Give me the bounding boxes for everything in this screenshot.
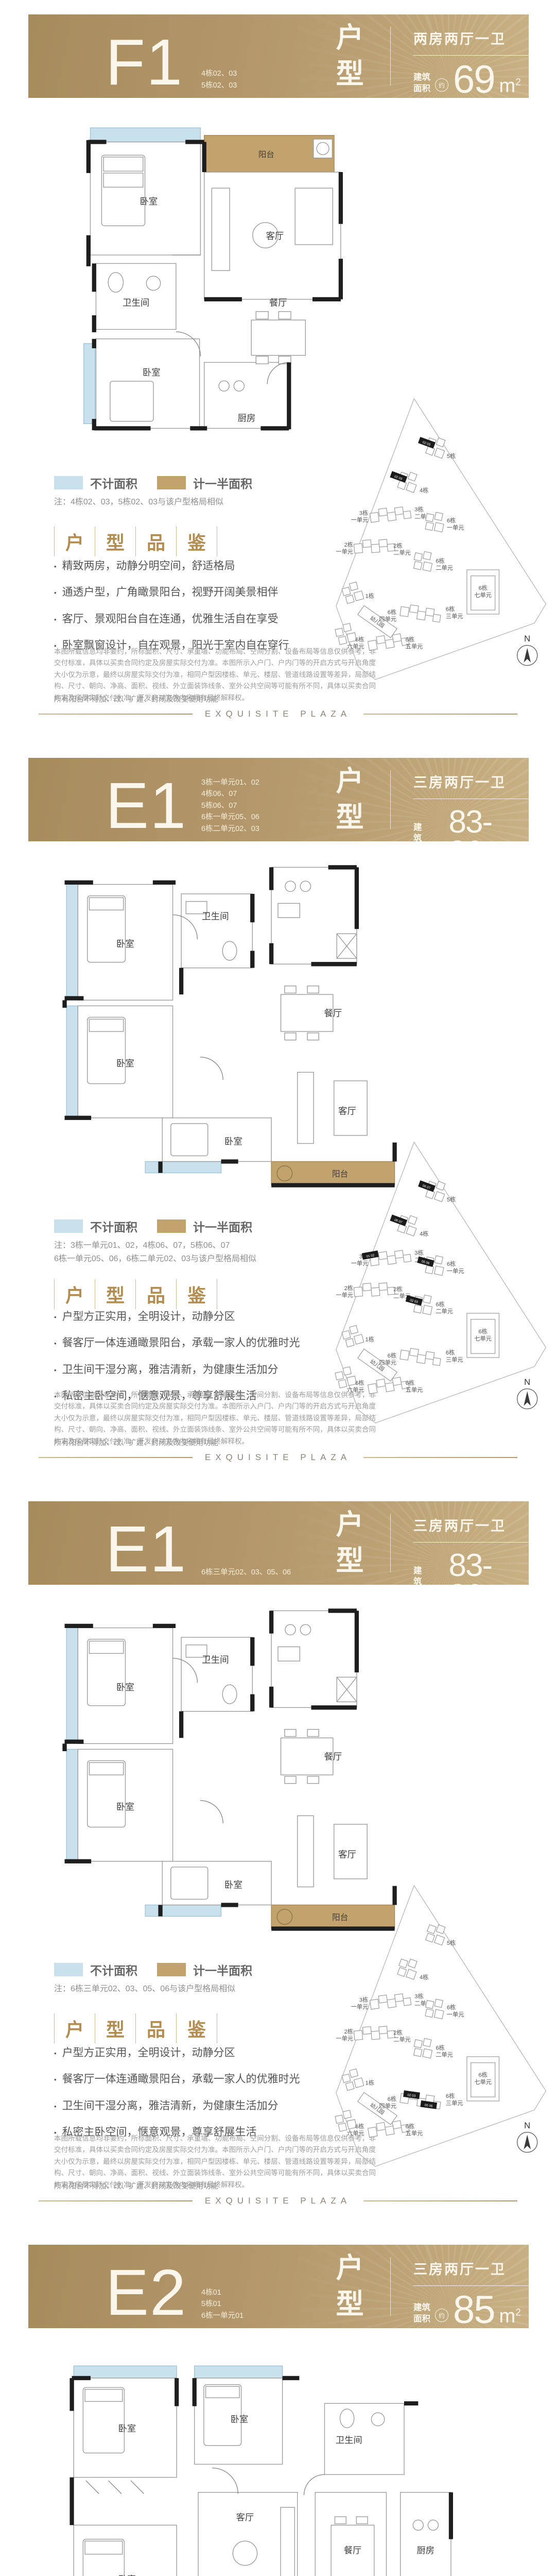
svg-text:2栋: 2栋 [393,2029,402,2036]
svg-text:一单元: 一单元 [351,2004,369,2010]
approx-badge: 约 [435,78,448,92]
legend-label: 计一半面积 [193,1961,252,1978]
svg-text:一单元: 一单元 [351,1260,369,1267]
feature-item: •客厅、景观阳台自在连通，优雅生活自在享受 [54,613,373,626]
room-label: 卧室 [224,1879,242,1890]
svg-text:一单元: 一单元 [447,1268,464,1275]
divider [390,770,391,829]
note: 注：6栋三单元02、03、05、06与该户型格局相似 [54,1982,235,1996]
svg-text:六单元: 六单元 [347,2130,364,2137]
note: 注：3栋一单元01、02，4栋06、07，5栋06、07 6栋一单元05、06，… [54,1239,256,1265]
svg-text:6栋: 6栋 [436,2044,444,2051]
divider [390,2257,391,2316]
building-label: 4栋 [420,486,428,494]
svg-text:3栋: 3栋 [414,1249,423,1257]
layout-type: 三房两厅一卫 [413,771,529,791]
svg-text:3栋: 3栋 [414,506,423,513]
svg-text:七单元: 七单元 [474,1335,492,1342]
svg-text:二单元: 二单元 [436,1308,453,1315]
svg-text:六单元: 六单元 [347,1386,364,1393]
svg-text:五单元: 五单元 [406,2130,423,2137]
area-value: 69 [453,64,495,96]
room-label: 餐厅 [344,2545,362,2555]
svg-text:6栋: 6栋 [446,605,455,613]
unit-highlight: 02 03 [406,1295,423,1306]
section-title: 户型品鉴 [54,527,217,556]
svg-text:6栋: 6栋 [447,517,456,524]
footer: EXQUISITE PLAZA [39,1452,517,1463]
siteplan: 5栋 4栋 3栋 一单元 3栋 二单元 6栋 一单元 2栋 一单元 2栋 二单元… [332,1136,553,1426]
unit-list: 4栋01 5栋01 6栋一单元01 [201,2287,315,2321]
section-title: 户型品鉴 [54,2013,217,2043]
balcony-note: 所有阳台不得加、改、扩建、封闭及改变使用功能 [54,1437,218,1448]
floorplan-f1: 卧室 阳台 客厅 卫生间 卧室 餐厅 厨房 [49,117,378,438]
svg-text:3栋: 3栋 [414,1993,423,2000]
room-label: 卧室 [116,1682,134,1692]
unit-highlight: 02 03 [418,437,436,449]
section-title: 户型品鉴 [54,1279,217,1309]
siteplan-slot: 5栋 4栋 3栋 一单元 3栋 二单元 6栋 一单元 2栋 一单元 2栋 二单元… [332,1879,553,2184]
panel-header: E2 4栋01 5栋01 6栋一单元01 户型 三房两厅一卫 建筑 面积 约 8… [28,2245,529,2328]
legend-swatch-noarea [54,1963,83,1976]
svg-text:一单元: 一单元 [336,1292,353,1299]
compass: N [517,634,537,666]
footer-brand: EXQUISITE PLAZA [193,2196,363,2206]
legend-label: 不计面积 [90,1217,137,1235]
svg-text:四单元: 四单元 [379,1360,396,1366]
svg-text:2栋: 2栋 [344,1284,353,1292]
svg-text:6栋: 6栋 [436,1300,444,1308]
panel-f1: F1 4栋02、03 5栋02、03 户型 两房两厅一卫 建筑 面积 约 69 … [0,0,556,743]
svg-text:六单元: 六单元 [347,643,364,650]
legend-swatch-noarea [54,476,83,489]
divider [413,799,529,799]
room-label: 客厅 [266,231,284,241]
svg-text:一单元: 一单元 [336,549,353,555]
svg-text:一单元: 一单元 [447,524,464,531]
svg-text:二单元: 二单元 [393,550,411,556]
svg-text:6栋: 6栋 [355,2123,364,2130]
svg-text:6栋: 6栋 [478,584,487,591]
legend-label: 计一半面积 [193,474,252,492]
building-label: 4栋 [420,1973,428,1980]
svg-text:四单元: 四单元 [379,616,396,623]
legend-label: 不计面积 [90,1961,137,1978]
svg-text:一单元: 一单元 [336,2036,353,2042]
legend-swatch-halfarea [157,1963,186,1976]
room-label: 卧室 [140,196,158,207]
svg-text:6栋: 6栋 [355,1379,364,1386]
layout-type: 两房两厅一卫 [413,28,529,48]
feature-item: •餐客厅一体连通瞰景阳台，承载一家人的优雅时光 [54,2073,373,2086]
room-label: 卫生间 [336,2435,362,2445]
unit-list: 3栋一单元01、02 4栋06、07 5栋06、07 6栋一单元05、06 6栋… [201,777,315,835]
svg-text:五单元: 五单元 [406,1386,423,1393]
room-label: 卧室 [143,367,161,378]
svg-text:3栋: 3栋 [359,509,368,516]
divider [413,55,529,56]
room-label: 厨房 [417,2545,435,2555]
area-label: 建筑 面积 [413,72,430,94]
svg-text:N: N [524,1377,530,1387]
unit-list: 4栋02、03 5栋02、03 [201,68,315,91]
room-label: 客厅 [338,1849,356,1859]
unit-code: E2 [106,2260,187,2325]
siteplan: 5栋 4栋 3栋 一单元 3栋 二单元 6栋 一单元 2栋 一单元 2栋 二单元… [332,1879,553,2169]
area-value: 85 [453,2294,495,2326]
feature-item: •餐客厅一体连通瞰景阳台，承载一家人的优雅时光 [54,1336,373,1350]
siteplan-slot: 5栋 4栋 3栋 一单元 3栋 二单元 6栋 一单元 2栋 一单元 2栋 二单元… [332,393,553,698]
divider [39,2200,193,2201]
balcony-note: 所有阳台不得加、改、扩建、封闭及改变使用功能 [54,693,218,704]
svg-text:3栋: 3栋 [359,1996,368,2003]
feature-item: •精致两房，动静分明空间，舒适格局 [54,560,373,573]
svg-text:6栋: 6栋 [388,1352,396,1359]
huxing-label: 户型 [333,1510,361,1582]
svg-text:N: N [524,2121,530,2130]
room-label: 餐厅 [269,298,287,308]
unit-code: F1 [106,30,183,95]
room-label: 卧室 [118,2423,136,2433]
legend-label: 不计面积 [90,474,137,492]
feature-item: •卫生间干湿分离，雅洁清新，为健康生活加分 [54,1363,373,1377]
svg-text:6栋: 6栋 [446,1349,455,1356]
floorplan-e2: 卧室 卧室 卫生间 卧室 客厅 餐厅 厨房 阳台 [44,2357,456,2576]
floorplan-slot: 卧室 阳台 客厅 卫生间 卧室 餐厅 厨房 [49,117,378,438]
feature-item: •通透户型，广角瞰景阳台，视野开阔美景相伴 [54,586,373,599]
balcony-note: 所有阳台不得加、改、扩建、封闭及改变使用功能 [54,2180,218,2191]
svg-text:七单元: 七单元 [474,2079,492,2086]
footer-brand: EXQUISITE PLAZA [193,709,363,719]
area-label: 建筑 面积 [413,1566,426,1585]
svg-text:6栋: 6栋 [478,1328,487,1335]
footer: EXQUISITE PLAZA [39,709,517,719]
svg-text:6栋: 6栋 [406,636,414,643]
divider [363,2200,517,2201]
area-label: 建筑 面积 [413,2302,430,2325]
panel-header: E1 6栋三单元02、03、05、06 户型 三房两厅一卫 建筑 面积 约 83… [28,1501,529,1585]
building-label: 1栋 [366,1336,374,1343]
layout-type: 三房两厅一卫 [413,1515,529,1535]
divider [390,27,391,86]
area-label: 建筑 面积 [413,822,426,841]
building-label: 5栋 [447,1939,456,1946]
svg-text:6栋: 6栋 [388,2095,396,2103]
unit-code: E1 [106,773,187,838]
divider [413,2285,529,2286]
svg-text:6栋: 6栋 [388,608,396,616]
svg-text:2栋: 2栋 [393,1285,402,1293]
room-label: 卧室 [118,2574,136,2576]
building-label: 4栋 [420,1230,428,1237]
svg-text:七单元: 七单元 [474,592,492,599]
feature-item: •户型方正实用，全明设计，动静分区 [54,2046,373,2060]
unit-list: 6栋三单元02、03、05、06 [201,1567,315,1578]
room-label: 客厅 [236,2512,254,2522]
compass: N [517,1377,537,1409]
svg-text:6栋: 6栋 [478,2071,487,2078]
unit-code: E1 [106,1517,187,1582]
room-label: 卫生间 [202,911,229,922]
legend-label: 计一半面积 [193,1217,252,1235]
legend-swatch-halfarea [157,476,186,489]
svg-text:二单元: 二单元 [436,565,453,571]
svg-text:2栋: 2栋 [344,541,353,548]
area-unit: m2 [499,76,521,96]
building-label: 1栋 [366,2079,374,2087]
room-label: 卧室 [231,2414,249,2424]
building-label: 1栋 [366,592,374,600]
note: 注：4栋02、03，5栋02、03与该户型格局相似 [54,496,223,509]
approx-badge: 约 [435,2309,448,2322]
footer-brand: EXQUISITE PLAZA [193,1452,363,1463]
area-value: 83-86 [449,1551,506,1585]
divider [413,1542,529,1543]
svg-text:二单元: 二单元 [436,2052,453,2058]
siteplan-slot: 5栋 4栋 3栋 一单元 3栋 二单元 6栋 一单元 2栋 一单元 2栋 二单元… [332,1136,553,1441]
svg-text:6栋: 6栋 [447,2004,456,2011]
svg-text:6栋: 6栋 [355,636,364,643]
feature-item: •户型方正实用，全明设计，动静分区 [54,1310,373,1324]
legend: 不计面积 计一半面积 [54,1961,272,1978]
svg-text:二单元: 二单元 [393,2037,411,2043]
room-label: 餐厅 [324,1752,342,1762]
legend-swatch-halfarea [157,1219,186,1233]
legend: 不计面积 计一半面积 [54,1217,272,1235]
legend-swatch-noarea [54,1219,83,1233]
room-label: 卧室 [116,939,134,949]
compass: N [517,2121,537,2153]
room-label: 阳台 [258,150,274,159]
svg-text:五单元: 五单元 [406,643,423,650]
panel-header: F1 4栋02、03 5栋02、03 户型 两房两厅一卫 建筑 面积 约 69 … [28,14,529,98]
floorplan-slot: 卧室 卧室 卫生间 卧室 客厅 餐厅 厨房 阳台 [44,2357,456,2576]
huxing-label: 户型 [333,766,361,838]
svg-text:6栋: 6栋 [436,557,444,564]
divider [363,714,517,715]
area-value: 83-86 [449,807,506,841]
svg-text:三单元: 三单元 [446,1357,463,1363]
area-unit: m2 [499,2307,521,2326]
room-label: 餐厅 [324,1008,342,1019]
feature-item: •卫生间干湿分离，雅洁清新，为健康生活加分 [54,2099,373,2113]
panel-e1-a: E1 3栋一单元01、02 4栋06、07 5栋06、07 6栋一单元05、06… [0,743,556,1487]
room-label: 客厅 [338,1106,356,1116]
svg-text:2栋: 2栋 [344,2028,353,2035]
room-label: 卧室 [116,1802,134,1812]
room-label: 卫生间 [202,1655,229,1665]
flyer-page: F1 4栋02、03 5栋02、03 户型 两房两厅一卫 建筑 面积 约 69 … [0,0,556,2576]
unit-highlight: 06 07 [418,1180,436,1192]
svg-text:一单元: 一单元 [447,2011,464,2018]
svg-text:6栋: 6栋 [406,1379,414,1386]
svg-text:6栋: 6栋 [446,2092,455,2099]
layout-type: 三房两厅一卫 [413,2258,529,2278]
huxing-label: 户型 [333,2253,361,2325]
svg-text:三单元: 三单元 [446,2100,463,2107]
svg-text:2栋: 2栋 [393,542,402,549]
huxing-label: 户型 [333,23,361,95]
svg-text:一单元: 一单元 [351,517,369,523]
divider [363,1457,517,1458]
divider [39,714,193,715]
svg-text:6栋: 6栋 [447,1260,456,1267]
room-label: 卧室 [116,1058,134,1069]
divider [39,1457,193,1458]
unit-highlight: 02 03 [390,471,407,483]
siteplan: 5栋 4栋 3栋 一单元 3栋 二单元 6栋 一单元 2栋 一单元 2栋 二单元… [332,393,553,682]
svg-text:三单元: 三单元 [446,613,463,620]
panel-e1-b: E1 6栋三单元02、03、05、06 户型 三房两厅一卫 建筑 面积 约 83… [0,1487,556,2230]
legend: 不计面积 计一半面积 [54,474,272,492]
unit-highlight: 06 07 [390,1214,407,1226]
footer: EXQUISITE PLAZA [39,2196,517,2206]
divider [390,1514,391,1572]
panel-header: E1 3栋一单元01、02 4栋06、07 5栋06、07 6栋一单元05、06… [28,758,529,841]
svg-text:N: N [524,634,530,643]
building-label: 5栋 [447,452,456,460]
svg-text:四单元: 四单元 [379,2103,396,2110]
room-label: 卫生间 [123,298,149,308]
svg-text:6栋: 6栋 [406,2123,414,2130]
panel-e2: E2 4栋01 5栋01 6栋一单元01 户型 三房两厅一卫 建筑 面积 约 8… [0,2230,556,2576]
room-label: 厨房 [238,413,256,423]
room-label: 卧室 [224,1136,242,1146]
building-label: 5栋 [447,1196,456,1203]
